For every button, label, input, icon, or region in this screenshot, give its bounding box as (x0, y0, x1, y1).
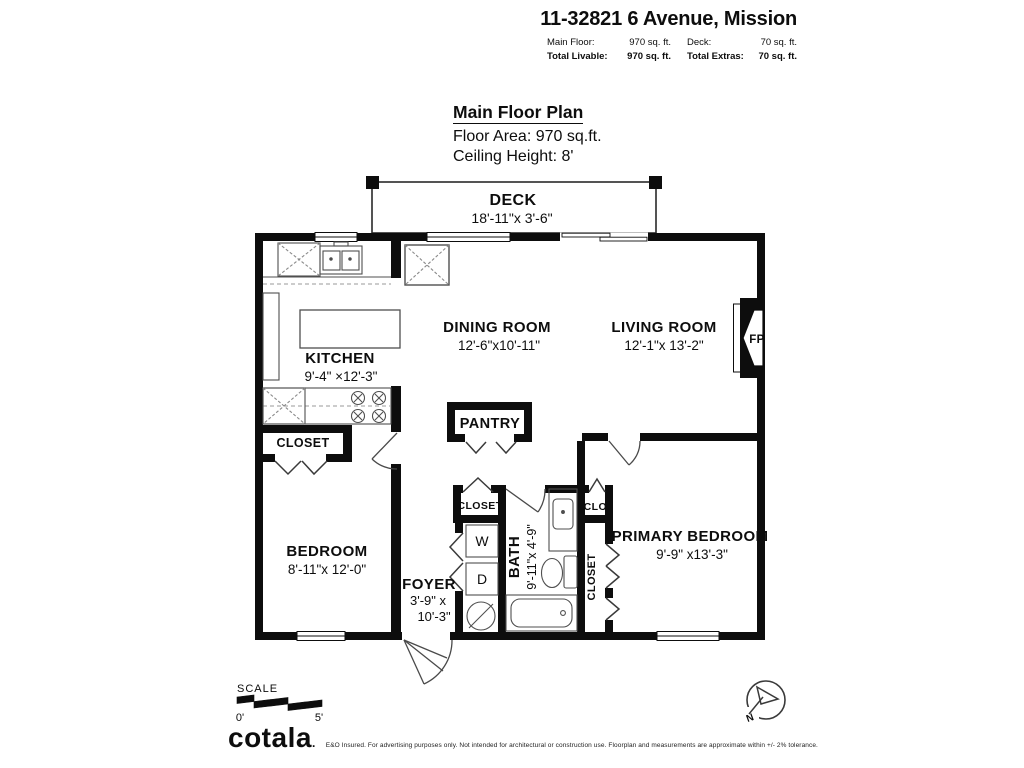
scale-label: SCALE (237, 683, 278, 695)
ceiling-height-line: Ceiling Height: 8' (453, 147, 602, 167)
primary-closet-label: CLOSET (586, 553, 598, 600)
dryer-label: D (477, 571, 487, 587)
area-label: Deck: (687, 36, 751, 50)
deck-post (366, 176, 379, 189)
bath-label: BATH (506, 536, 523, 578)
living-label: LIVING ROOM (611, 319, 716, 336)
living-dims: 12'-1"x 13'-2" (624, 338, 703, 353)
fireplace-label: FP (749, 334, 765, 346)
fireplace: FP (734, 298, 766, 378)
dining-label: DINING ROOM (443, 319, 551, 336)
area-value: 70 sq. ft. (751, 36, 797, 50)
plan-title-block: Main Floor Plan Floor Area: 970 sq.ft. C… (453, 102, 602, 167)
scale-bar: SCALE 0' 5' (236, 683, 323, 724)
deck-label: DECK (490, 192, 537, 209)
area-label: Total Livable: (547, 50, 619, 64)
window (657, 632, 719, 641)
area-value: 970 sq. ft. (619, 36, 671, 50)
kitchen-closet-label: CLOSET (276, 436, 329, 450)
window (315, 233, 357, 242)
listing-address: 11-32821 6 Avenue, Mission (540, 8, 797, 31)
kitchen-dims: 9'-4" ×12'-3" (305, 369, 378, 384)
area-row-2: Total Livable: 970 sq. ft. Total Extras:… (540, 50, 797, 64)
area-value: 70 sq. ft. (751, 50, 797, 64)
area-row-1: Main Floor: 970 sq. ft. Deck: 70 sq. ft. (540, 36, 797, 50)
foyer-closet-label: CLOSET (458, 500, 503, 512)
deck-dims: 18'-11"x 3'-6" (471, 210, 552, 226)
clo-label: CLO. (584, 501, 611, 513)
bedroom-dims: 8'-11"x 12'-0" (288, 562, 366, 577)
plan-title: Main Floor Plan (453, 102, 583, 124)
dining-dims: 12'-6"x10'-11" (458, 338, 540, 353)
compass: N (743, 681, 785, 725)
foyer-label: FOYER (402, 576, 456, 593)
sliding-door (560, 233, 648, 242)
footer: cotala. E&O Insured. For advertising pur… (228, 722, 818, 754)
entry-door (404, 640, 452, 684)
entry-opening (402, 632, 450, 640)
washer-label: W (475, 533, 489, 549)
primary-label: PRIMARY BEDROOM (612, 528, 769, 545)
area-label: Main Floor: (547, 36, 619, 50)
bedroom-label: BEDROOM (286, 543, 367, 560)
listing-header: 11-32821 6 Avenue, Mission Main Floor: 9… (540, 8, 797, 64)
window (427, 233, 510, 242)
area-label: Total Extras: (687, 50, 751, 64)
deck-post (649, 176, 662, 189)
floor-area-line: Floor Area: 970 sq.ft. (453, 127, 602, 147)
deck: DECK 18'-11"x 3'-6" (366, 176, 662, 233)
foyer-dims-2: 10'-3" (417, 609, 451, 624)
area-value: 970 sq. ft. (619, 50, 671, 64)
foyer-dims-1: 3'-9" x (410, 593, 446, 608)
primary-dims: 9'-9" x13'-3" (656, 547, 728, 562)
disclaimer-text: E&O Insured. For advertising purposes on… (326, 742, 818, 749)
pantry-label: PANTRY (460, 416, 520, 432)
window (297, 632, 345, 641)
bath-dims: 9'-11"x 4'-9" (525, 524, 539, 590)
cotala-logo: cotala. (228, 722, 316, 754)
kitchen-label: KITCHEN (305, 350, 374, 367)
